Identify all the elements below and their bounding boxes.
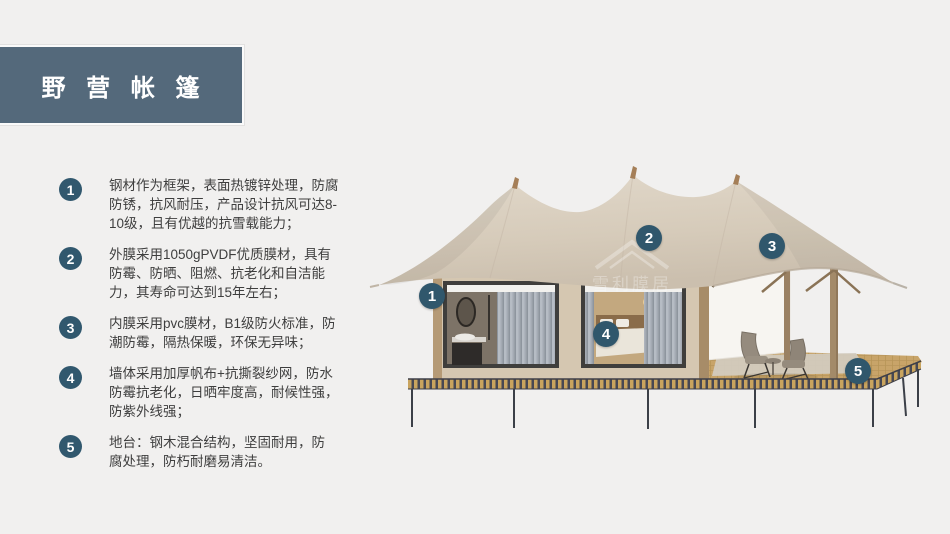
corner-post-right <box>699 274 709 380</box>
slide: 野 营 帐 篷 1 钢材作为框架，表面热镀锌处理，防腐 防锈，抗风耐压，产品设计… <box>0 0 950 534</box>
peak-cap <box>512 177 519 189</box>
tip-strut <box>893 283 907 288</box>
vanity-cabinet <box>452 343 482 365</box>
tip-strut <box>370 285 379 287</box>
curtain <box>497 292 555 364</box>
pole-inner <box>784 268 790 360</box>
callout-4: 4 <box>593 321 619 347</box>
brace <box>806 270 834 291</box>
callout-2: 2 <box>636 225 662 251</box>
curtain <box>644 292 682 364</box>
callout-5: 5 <box>845 358 871 384</box>
callout-3: 3 <box>759 233 785 259</box>
peak-cap <box>630 166 637 179</box>
tent-render: 雪利膜居 <box>0 0 950 534</box>
watermark-text: 雪利膜居 <box>592 275 672 294</box>
canopy <box>370 166 907 289</box>
pillow <box>616 319 629 327</box>
window-bathroom <box>443 281 559 368</box>
wash-basin <box>455 334 475 341</box>
callout-1: 1 <box>419 283 445 309</box>
mirror <box>457 298 475 326</box>
